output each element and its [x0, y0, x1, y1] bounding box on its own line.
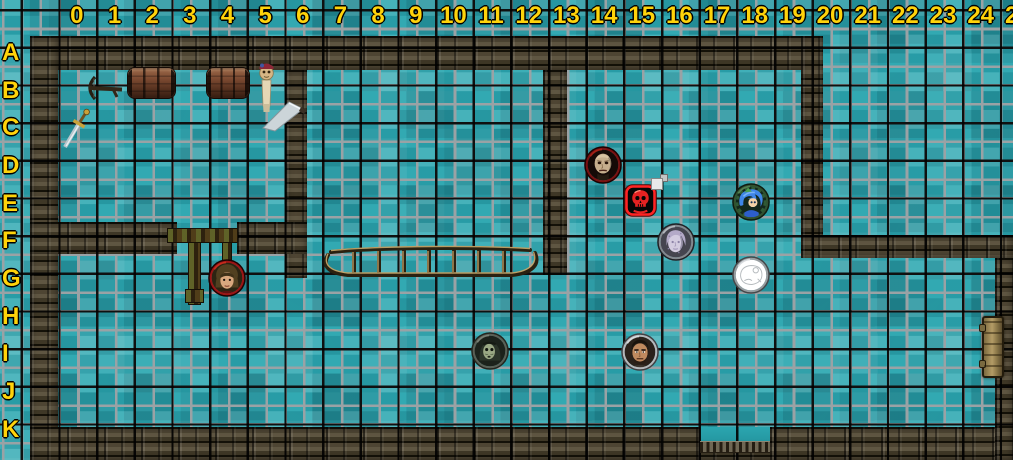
barrel[interactable] [127, 67, 176, 99]
door-hinge [979, 324, 986, 332]
token-blue-haired-girl[interactable] [732, 183, 770, 221]
wall-inner-east-vertical [543, 70, 567, 275]
wall-row-f-east [801, 235, 1013, 258]
wall-bottom [30, 427, 1013, 460]
crossbow[interactable] [84, 75, 124, 101]
door[interactable] [982, 316, 1004, 378]
counter-top [167, 228, 238, 243]
inscription-stone [700, 441, 770, 453]
status-badge [651, 178, 663, 190]
token-dark-haired-man[interactable] [621, 333, 659, 371]
long-bench[interactable] [318, 240, 544, 284]
token-brown-haired-woman[interactable] [208, 259, 246, 297]
wall-building-east [801, 36, 823, 258]
sword[interactable] [58, 102, 92, 152]
door-hinge [979, 360, 986, 368]
token-dark-ghost[interactable] [471, 332, 509, 370]
token-marble-statue-head[interactable] [657, 223, 695, 261]
wall-row-f-west-a [30, 222, 177, 254]
counter-foot [185, 289, 204, 303]
bottom-wall-notch [700, 427, 770, 442]
knife[interactable] [260, 99, 306, 135]
wall-row-f-west-b [237, 222, 307, 254]
wall-top [30, 36, 823, 70]
token-bald-vampire[interactable] [584, 146, 622, 184]
token-death-skull-marker[interactable] [624, 184, 657, 217]
barrel[interactable] [206, 67, 250, 99]
token-white-doodle-blob[interactable] [732, 256, 770, 294]
map-canvas[interactable]: 0123456789101112131415161718192021222324… [0, 0, 1013, 460]
